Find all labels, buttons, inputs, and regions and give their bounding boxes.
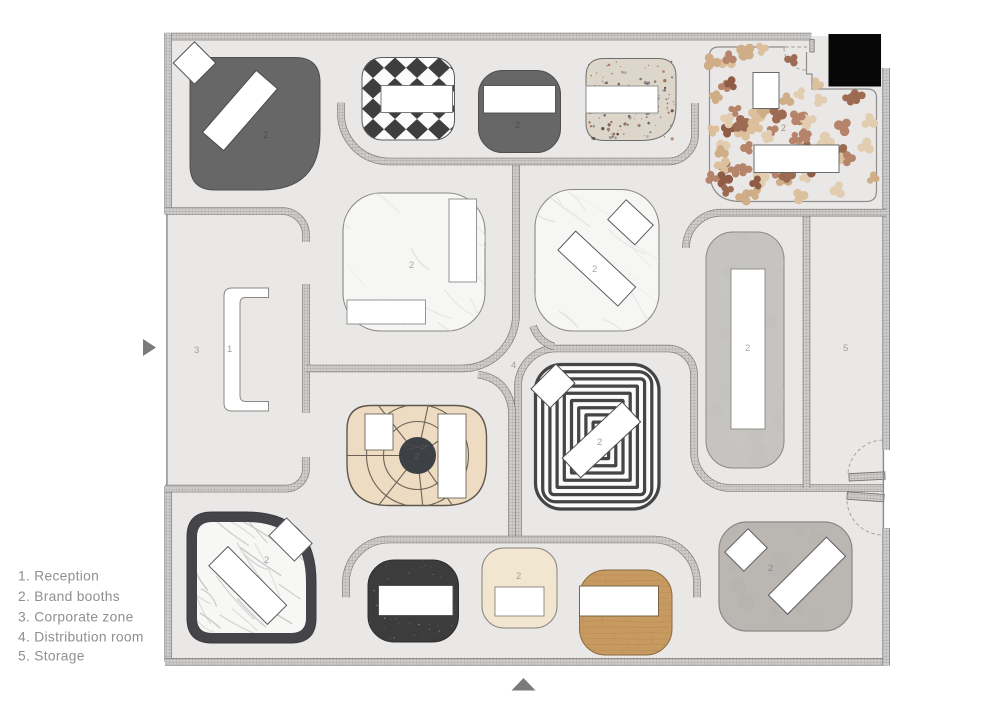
- svg-text:5: 5: [843, 343, 848, 354]
- svg-text:5. Storage: 5. Storage: [18, 649, 85, 664]
- svg-text:2. Brand booths: 2. Brand booths: [18, 589, 120, 604]
- svg-text:2: 2: [415, 451, 420, 461]
- svg-text:2: 2: [768, 563, 773, 574]
- svg-text:1. Reception: 1. Reception: [18, 569, 99, 584]
- svg-text:2: 2: [516, 571, 521, 582]
- svg-text:4. Distribution room: 4. Distribution room: [18, 629, 144, 644]
- svg-text:2: 2: [264, 555, 269, 566]
- svg-text:3: 3: [194, 345, 199, 356]
- svg-text:3. Corporate zone: 3. Corporate zone: [18, 609, 134, 624]
- svg-text:1: 1: [227, 344, 232, 355]
- svg-text:2: 2: [515, 120, 520, 131]
- svg-text:2: 2: [592, 264, 597, 275]
- svg-text:2: 2: [263, 130, 268, 141]
- svg-text:2: 2: [597, 437, 602, 448]
- svg-text:2: 2: [409, 260, 414, 271]
- svg-text:2: 2: [781, 123, 786, 133]
- svg-text:2: 2: [745, 343, 750, 354]
- svg-text:4: 4: [511, 360, 516, 371]
